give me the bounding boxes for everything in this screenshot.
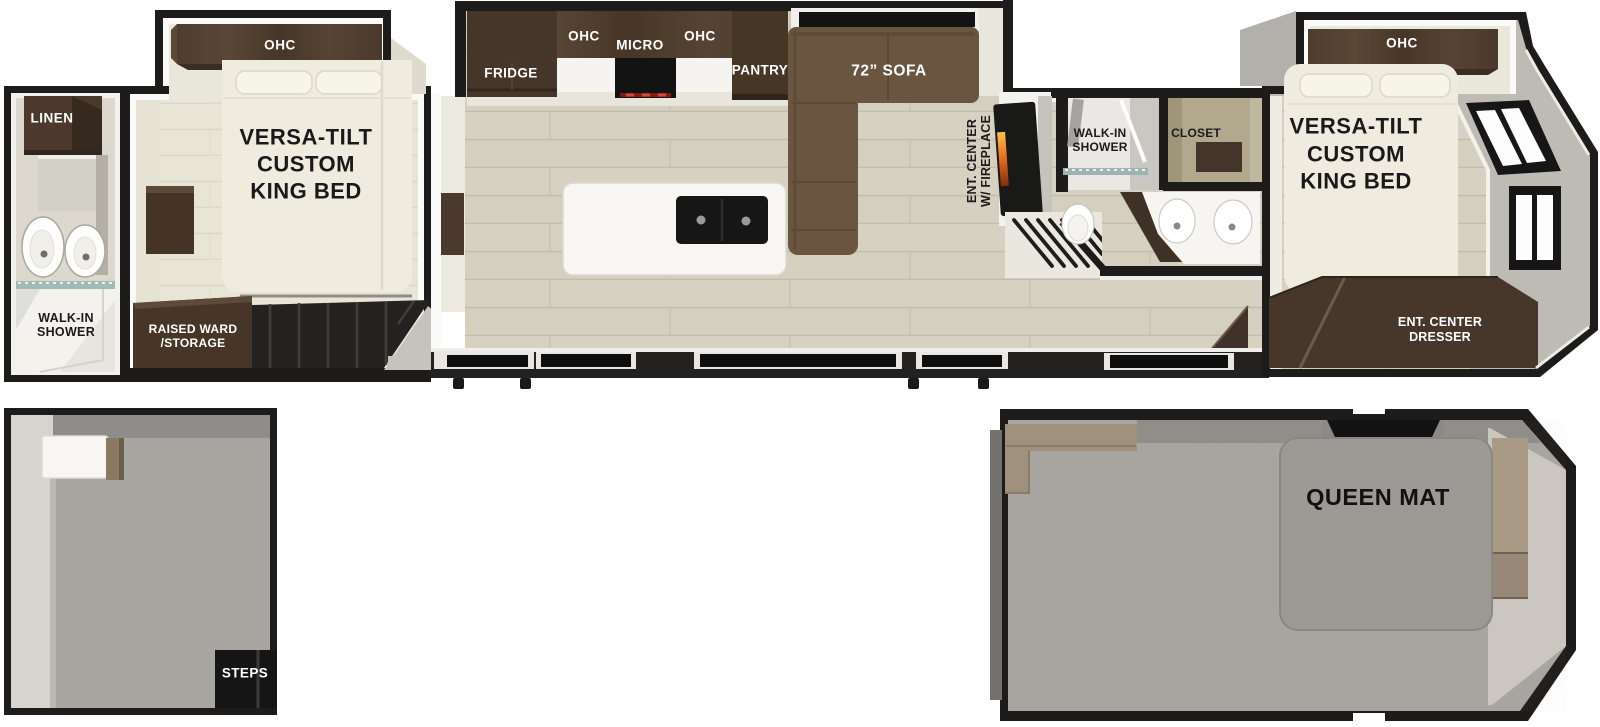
svg-text:OHC: OHC xyxy=(684,29,716,44)
svg-text:QUEEN MAT: QUEEN MAT xyxy=(1306,484,1450,510)
svg-text:W/ FIREPLACE: W/ FIREPLACE xyxy=(979,115,993,207)
svg-text:72” SOFA: 72” SOFA xyxy=(851,63,927,80)
svg-text:CLOSET: CLOSET xyxy=(1171,126,1221,140)
svg-text:WALK-IN: WALK-IN xyxy=(1074,126,1127,140)
svg-text:KING BED: KING BED xyxy=(250,179,362,204)
svg-text:VERSA-TILT: VERSA-TILT xyxy=(240,125,373,150)
svg-text:MICRO: MICRO xyxy=(616,38,664,53)
svg-text:DRESSER: DRESSER xyxy=(1409,330,1471,344)
svg-text:ENT. CENTER: ENT. CENTER xyxy=(1398,315,1482,329)
svg-text:OHC: OHC xyxy=(264,38,296,53)
svg-text:KING BED: KING BED xyxy=(1300,169,1412,194)
svg-text:OHC: OHC xyxy=(568,29,600,44)
svg-text:SHOWER: SHOWER xyxy=(1072,140,1127,154)
svg-text:PANTRY: PANTRY xyxy=(732,63,788,78)
svg-text:RAISED WARD: RAISED WARD xyxy=(149,322,238,336)
svg-text:WALK-IN: WALK-IN xyxy=(38,311,94,325)
svg-text:CUSTOM: CUSTOM xyxy=(1307,142,1405,167)
svg-text:SHOWER: SHOWER xyxy=(37,325,95,339)
svg-text:OHC: OHC xyxy=(1386,36,1418,51)
svg-text:FRIDGE: FRIDGE xyxy=(484,66,537,81)
svg-text:/STORAGE: /STORAGE xyxy=(161,336,226,350)
svg-text:CUSTOM: CUSTOM xyxy=(257,152,355,177)
svg-text:VERSA-TILT: VERSA-TILT xyxy=(1290,114,1423,139)
svg-text:LINEN: LINEN xyxy=(31,111,74,126)
svg-text:STEPS: STEPS xyxy=(222,666,268,681)
svg-text:ENT. CENTER: ENT. CENTER xyxy=(965,119,979,203)
